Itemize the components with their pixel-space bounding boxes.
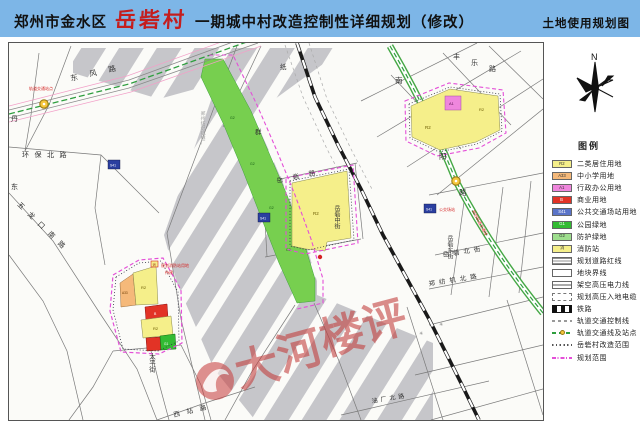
legend-label: 轨道交通线及站点 bbox=[577, 328, 637, 338]
legend-label: 岳砦村改造范围 bbox=[577, 340, 630, 350]
annotation: 规划轨道交通线 bbox=[471, 209, 489, 237]
legend-item: 消消防站 bbox=[546, 243, 640, 255]
parcel-code-g2: G2 bbox=[269, 206, 274, 210]
legend-code: B bbox=[561, 198, 564, 202]
legend-item: 规划道路红线 bbox=[546, 255, 640, 267]
title-bar: 郑州市金水区 岳砦村 一期城中村改造控制性详细规划（修改） 土地使用规划图 bbox=[0, 0, 640, 37]
svg-text:✳: ✳ bbox=[419, 331, 423, 337]
page: 郑州市金水区 岳砦村 一期城中村改造控制性详细规划（修改） 土地使用规划图 bbox=[0, 0, 640, 430]
road-label: 太平街 bbox=[148, 352, 156, 374]
legend-item: A1行政办公用地 bbox=[546, 182, 640, 194]
legend-code: S41 bbox=[558, 210, 566, 214]
parcel-code-g2: G2 bbox=[250, 162, 255, 166]
parcel-code-r2: R2 bbox=[153, 326, 159, 331]
legend-swatch-power-line bbox=[552, 281, 572, 289]
road-label: 岳砦东街 bbox=[446, 235, 453, 260]
title-village-name: 岳砦村 bbox=[114, 4, 188, 34]
legend-panel: N 图例 R2二类居住用地 A33中小学用地 A1行政办公用地 B商业用地 S4… bbox=[546, 38, 640, 430]
legend-item: 岳砦村改造范围 bbox=[546, 339, 640, 351]
road-label: 丰 bbox=[453, 52, 460, 61]
legend-item: A33中小学用地 bbox=[546, 170, 640, 182]
legend-item: 架空高压电力线 bbox=[546, 279, 640, 291]
legend-swatch-g2: G2 bbox=[552, 233, 572, 241]
legend-code: G1 bbox=[559, 222, 565, 226]
legend-item: 轨道交通控制线 bbox=[546, 315, 640, 327]
road-label: 路 bbox=[459, 187, 467, 197]
annotation: 公交场站 bbox=[439, 206, 455, 212]
title-plan-name: 一期城中村改造控制性详细规划（修改） bbox=[195, 11, 474, 32]
parcel-code-a33: A33 bbox=[122, 291, 128, 295]
legend-swatch-plan-bound bbox=[552, 357, 572, 359]
map-canvas: G2 G2 G2 G2 bbox=[9, 43, 543, 420]
road-label: 路 bbox=[489, 64, 496, 73]
legend-code: G2 bbox=[559, 234, 565, 238]
legend-label: 架空高压电力线 bbox=[577, 280, 630, 290]
parcel-code-r2: R2 bbox=[313, 211, 319, 216]
parcel-code-s41: S41 bbox=[110, 164, 116, 168]
legend-swatch-railway bbox=[552, 305, 572, 313]
road-label: 丹 bbox=[11, 115, 18, 123]
title-region: 郑州市金水区 bbox=[14, 11, 107, 32]
legend-label: 铁路 bbox=[577, 304, 592, 314]
legend-label: 轨道交通控制线 bbox=[577, 316, 630, 326]
legend-swatch-road-redline bbox=[552, 257, 572, 265]
nanyang-road bbox=[390, 46, 543, 313]
legend-label: 消防站 bbox=[577, 244, 600, 254]
legend-swatch-r2: R2 bbox=[552, 160, 572, 168]
legend-item: B商业用地 bbox=[546, 194, 640, 206]
legend-swatch-parcel-line bbox=[552, 269, 572, 277]
road-label: 群 bbox=[255, 127, 262, 136]
road-label: 郑纺机北路 bbox=[428, 271, 481, 288]
road-label: 西站路 bbox=[172, 401, 213, 419]
legend-list: R2二类居住用地 A33中小学用地 A1行政办公用地 B商业用地 S41公共交通… bbox=[546, 158, 640, 364]
planning-map: G2 G2 G2 G2 bbox=[8, 42, 544, 421]
parcel-code-r2: R2 bbox=[141, 285, 147, 290]
legend-code: A1 bbox=[559, 186, 564, 190]
road-label: 环保北路 bbox=[22, 150, 72, 159]
legend-swatch-b: B bbox=[552, 196, 572, 204]
legend-code: A33 bbox=[558, 174, 566, 178]
parcel-code-r2: R2 bbox=[425, 125, 431, 130]
road-label: 五龙口南路 bbox=[16, 200, 73, 255]
fire-station-code: 消 bbox=[153, 262, 156, 267]
compass-rose: N bbox=[572, 50, 618, 116]
road-label: 南 bbox=[395, 75, 403, 85]
legend-item: S41公共交通场站用地 bbox=[546, 206, 640, 218]
legend-label: 商业用地 bbox=[577, 195, 607, 205]
legend-item: 轨道交通线及站点 bbox=[546, 327, 640, 339]
station-dot-icon bbox=[560, 330, 565, 335]
legend-label: 行政办公用地 bbox=[577, 183, 622, 193]
legend-code: R2 bbox=[559, 162, 564, 166]
factory-name-label: 郑州纺织机械厂 bbox=[200, 110, 205, 146]
annotation: 轨道交通站点 bbox=[29, 85, 53, 91]
watermark-logo bbox=[196, 362, 234, 400]
legend-label: 防护绿地 bbox=[577, 232, 607, 242]
parcel-code-s41: S41 bbox=[426, 208, 432, 212]
road-label: 岳砦中街 bbox=[333, 205, 340, 230]
svg-text:✳: ✳ bbox=[439, 322, 443, 328]
legend-item: 铁路 bbox=[546, 303, 640, 315]
parcel-commercial bbox=[146, 337, 161, 351]
legend-item: 地块界线 bbox=[546, 267, 640, 279]
legend-label: 规划高压入地电缆 bbox=[577, 292, 637, 302]
legend-swatch-a1: A1 bbox=[552, 184, 572, 192]
parcel-code-r2: R2 bbox=[479, 107, 485, 112]
legend-title: 图例 bbox=[578, 139, 640, 152]
sheet-name-label: 土地使用规划图 bbox=[543, 15, 631, 31]
legend-swatch-metro-line bbox=[552, 332, 572, 334]
road-label: 乐 bbox=[471, 58, 478, 67]
legend-label: 规划范围 bbox=[577, 353, 607, 363]
compass-north-label: N bbox=[591, 52, 598, 62]
parcel-code-g2: G2 bbox=[230, 116, 235, 120]
parcel-code-g1: G1 bbox=[164, 342, 168, 346]
legend-swatch-village-bound bbox=[552, 344, 572, 346]
road-label: 纸 bbox=[280, 62, 287, 71]
red-dot-marker bbox=[318, 255, 322, 259]
legend-label: 地块界线 bbox=[577, 268, 607, 278]
map-title: 郑州市金水区 岳砦村 一期城中村改造控制性详细规划（修改） bbox=[0, 4, 474, 34]
legend-item: G1公园绿地 bbox=[546, 218, 640, 230]
legend-label: 中小学用地 bbox=[577, 171, 615, 181]
legend-label: 公共交通场站用地 bbox=[577, 207, 637, 217]
legend-swatch-g1: G1 bbox=[552, 221, 572, 229]
parcel-code-a1: A1 bbox=[449, 101, 455, 106]
road-label: 东 bbox=[11, 182, 18, 191]
legend-label: 公园绿地 bbox=[577, 220, 607, 230]
legend-item: 规划高压入地电缆 bbox=[546, 291, 640, 303]
legend-item: R2二类居住用地 bbox=[546, 158, 640, 170]
legend-swatch-a33: A33 bbox=[552, 172, 572, 180]
legend-label: 二类居住用地 bbox=[577, 159, 622, 169]
legend-item: G2防护绿地 bbox=[546, 231, 640, 243]
legend-swatch-s41: S41 bbox=[552, 208, 572, 216]
road-label: 阳 bbox=[439, 152, 447, 161]
legend-item: 规划范围 bbox=[546, 352, 640, 364]
legend-swatch-cable-line bbox=[552, 293, 572, 301]
parcel-code-s41: S41 bbox=[260, 217, 266, 221]
legend-label: 规划道路红线 bbox=[577, 256, 622, 266]
annotation: 规划消防站用地 bbox=[161, 262, 189, 268]
legend-swatch-metro-control bbox=[552, 320, 572, 322]
legend-swatch-fire: 消 bbox=[552, 245, 572, 253]
annotation: 待建 bbox=[165, 269, 173, 275]
legend-code: 消 bbox=[560, 247, 564, 251]
